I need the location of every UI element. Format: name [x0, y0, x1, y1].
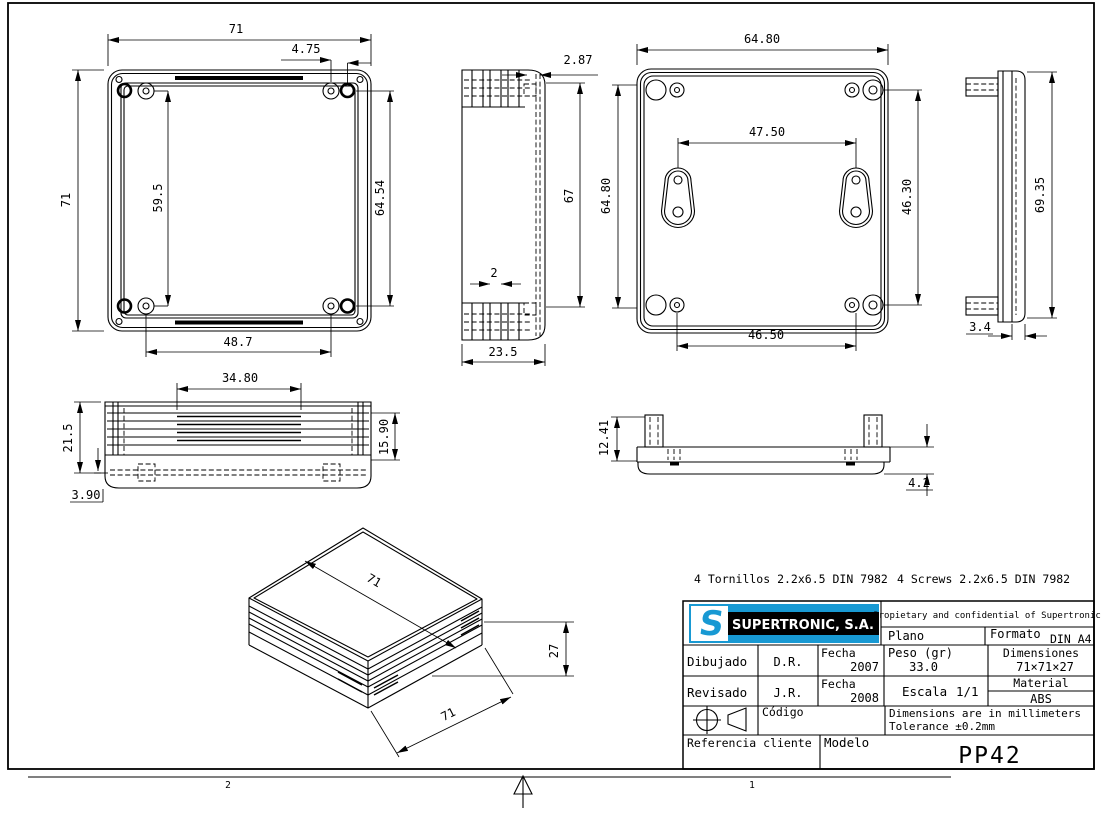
note-screws: 4 Screws 2.2x6.5 DIN 7982	[897, 572, 1070, 586]
referencia-label: Referencia cliente	[687, 736, 812, 750]
keyhole-left	[662, 168, 695, 228]
fecha2-value: 2008	[850, 691, 879, 705]
dim-boss-span-v2: 64.54	[373, 180, 387, 216]
dim-bottom-height: 64.80	[599, 178, 613, 214]
view-bottom-external: 64.80 64.80 47.50 46.30 46.50	[599, 32, 922, 351]
view-front-base: 34.80 21.5 15.90 3.90	[61, 371, 400, 502]
dim-vent-width: 34.80	[222, 371, 258, 385]
dim-hole-span-bottom: 46.50	[748, 328, 784, 342]
note-tornillos: 4 Tornillos 2.2x6.5 DIN 7982	[694, 572, 888, 586]
dim-inner-height: 67	[562, 189, 576, 203]
confidential-note: Propietary and confidential of Supertron…	[873, 611, 1101, 621]
dim-lip: 2.87	[564, 53, 593, 67]
dimensions-note-1: Dimensions are in millimeters	[889, 707, 1081, 720]
view-isometric: 71 27 71	[249, 528, 574, 757]
revisado-value: J.R.	[774, 686, 803, 700]
dim-lid-height: 69.35	[1033, 177, 1047, 213]
dim-lid-thickness: 3.4	[969, 320, 991, 334]
dim-rib-height: 15.90	[377, 419, 391, 455]
dim-iso-height: 27	[547, 644, 561, 658]
dim-left-height: 71	[59, 193, 73, 207]
keyhole-right	[840, 168, 873, 228]
dim-skirt: 3.90	[72, 488, 101, 502]
peso-label: Peso (gr)	[888, 646, 953, 660]
dim-top-width: 71	[229, 22, 243, 36]
dibujado-label: Dibujado	[687, 654, 747, 669]
escala-value: 1/1	[956, 684, 979, 699]
cad-drawing: 2 1 71 4.75 71 59.5 64.54	[0, 0, 1102, 813]
supertronic-logo: S SUPERTRONIC, S.A.	[689, 604, 879, 644]
logo-wordmark: SUPERTRONIC, S.A.	[732, 618, 874, 633]
view-top-internal: 71 4.75 71 59.5 64.54 48.7	[59, 22, 394, 357]
modelo-label: Modelo	[824, 735, 869, 750]
peso-value: 33.0	[909, 660, 938, 674]
dim-hole-span-right: 46.30	[900, 179, 914, 215]
modelo-value: PP42	[958, 743, 1021, 769]
view-lid-edge: 69.35 3.4	[966, 71, 1057, 340]
screw-notes: 4 Tornillos 2.2x6.5 DIN 7982 4 Screws 2.…	[694, 572, 1070, 586]
dim-flange: 4.2	[908, 476, 930, 490]
dimensiones-value: 71×71×27	[1016, 660, 1074, 674]
bottom-vent-slot	[175, 321, 303, 325]
codigo-label: Código	[762, 705, 804, 719]
top-vent-slot	[175, 76, 303, 80]
dim-iso-depth: 71	[439, 705, 458, 724]
dimensions-note-2: Tolerance ±0.2mm	[889, 720, 995, 733]
zone-label-2: 2	[225, 780, 231, 791]
fecha1-label: Fecha	[821, 646, 856, 660]
dim-boss-span-h: 48.7	[224, 335, 253, 349]
revisado-label: Revisado	[687, 685, 747, 700]
material-label: Material	[1013, 676, 1068, 690]
dim-boss-span-v: 59.5	[151, 184, 165, 213]
view-side-section: 2.87 67 2 23.5	[462, 53, 598, 366]
projection-symbol-icon	[693, 706, 746, 734]
fecha1-value: 2007	[850, 660, 879, 674]
fecha2-label: Fecha	[821, 677, 856, 691]
dibujado-value: D.R.	[774, 655, 803, 669]
escala-label: Escala	[902, 684, 947, 699]
dim-post-height: 12.41	[597, 420, 611, 456]
material-value: ABS	[1030, 692, 1052, 706]
title-block: S SUPERTRONIC, S.A. Propietary and confi…	[683, 601, 1101, 769]
dim-front-height: 21.5	[61, 424, 75, 453]
dim-hole-offset: 4.75	[292, 42, 321, 56]
dim-bottom-width: 64.80	[744, 32, 780, 46]
drawing-sheet: 2 1 71 4.75 71 59.5 64.54	[0, 0, 1102, 813]
fold-mark-icon	[514, 776, 532, 808]
plano-label: Plano	[888, 629, 924, 643]
view-front-lid: 12.41 4.2	[597, 415, 934, 496]
formato-value: DIN A4	[1050, 632, 1092, 646]
dim-keyhole-span: 47.50	[749, 125, 785, 139]
dimensiones-label: Dimensiones	[1003, 646, 1079, 660]
dim-depth: 23.5	[489, 345, 518, 359]
zone-label-1: 1	[749, 780, 755, 791]
dim-rib-gap: 2	[490, 266, 497, 280]
formato-label: Formato	[990, 627, 1041, 641]
dim-iso-width: 71	[364, 571, 384, 590]
